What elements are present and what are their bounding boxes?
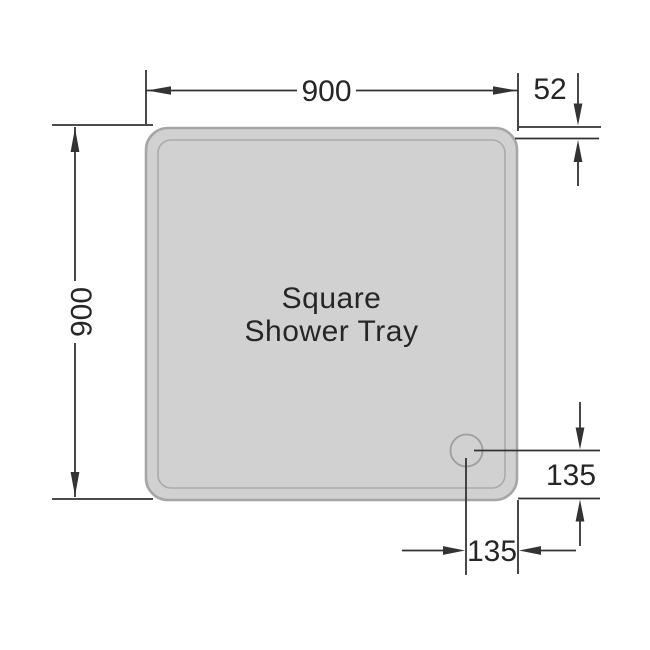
arrowhead-left-icon xyxy=(519,546,541,555)
dimension-depth: 52 xyxy=(515,73,601,186)
drain-from-bottom-label: 135 xyxy=(546,459,596,492)
width-dimension-label: 900 xyxy=(301,75,351,108)
arrowhead-up-icon xyxy=(574,140,583,162)
arrowhead-down-icon xyxy=(71,472,80,496)
tray-title-line2: Shower Tray xyxy=(245,315,419,348)
arrowhead-up-icon xyxy=(576,500,585,522)
arrowhead-right-icon xyxy=(493,86,517,95)
arrowhead-down-icon xyxy=(576,428,585,450)
diagram-canvas: Square Shower Tray 900 900 xyxy=(0,0,650,650)
arrowhead-right-icon xyxy=(443,546,465,555)
arrowhead-down-icon xyxy=(574,104,583,126)
tray-title-line1: Square xyxy=(282,282,382,315)
dimension-height: 900 xyxy=(52,125,153,499)
dimension-width: 900 xyxy=(146,70,518,131)
depth-dimension-label: 52 xyxy=(533,73,566,106)
drain-from-right-label: 135 xyxy=(467,535,517,568)
shower-tray-dimension-diagram: Square Shower Tray 900 900 xyxy=(0,0,650,650)
shower-tray: Square Shower Tray xyxy=(146,128,517,500)
height-dimension-label: 900 xyxy=(66,287,99,337)
arrowhead-left-icon xyxy=(147,86,171,95)
arrowhead-up-icon xyxy=(71,128,80,152)
